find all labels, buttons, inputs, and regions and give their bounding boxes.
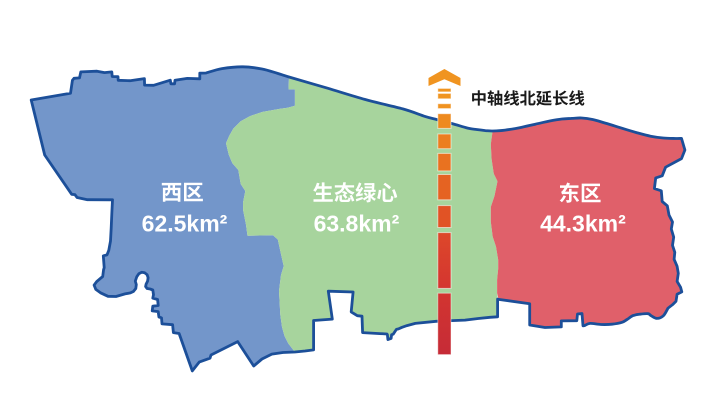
svg-text:63.8km²: 63.8km² bbox=[314, 211, 400, 237]
svg-text:44.3km²: 44.3km² bbox=[540, 211, 626, 237]
svg-text:62.5km²: 62.5km² bbox=[142, 211, 228, 237]
